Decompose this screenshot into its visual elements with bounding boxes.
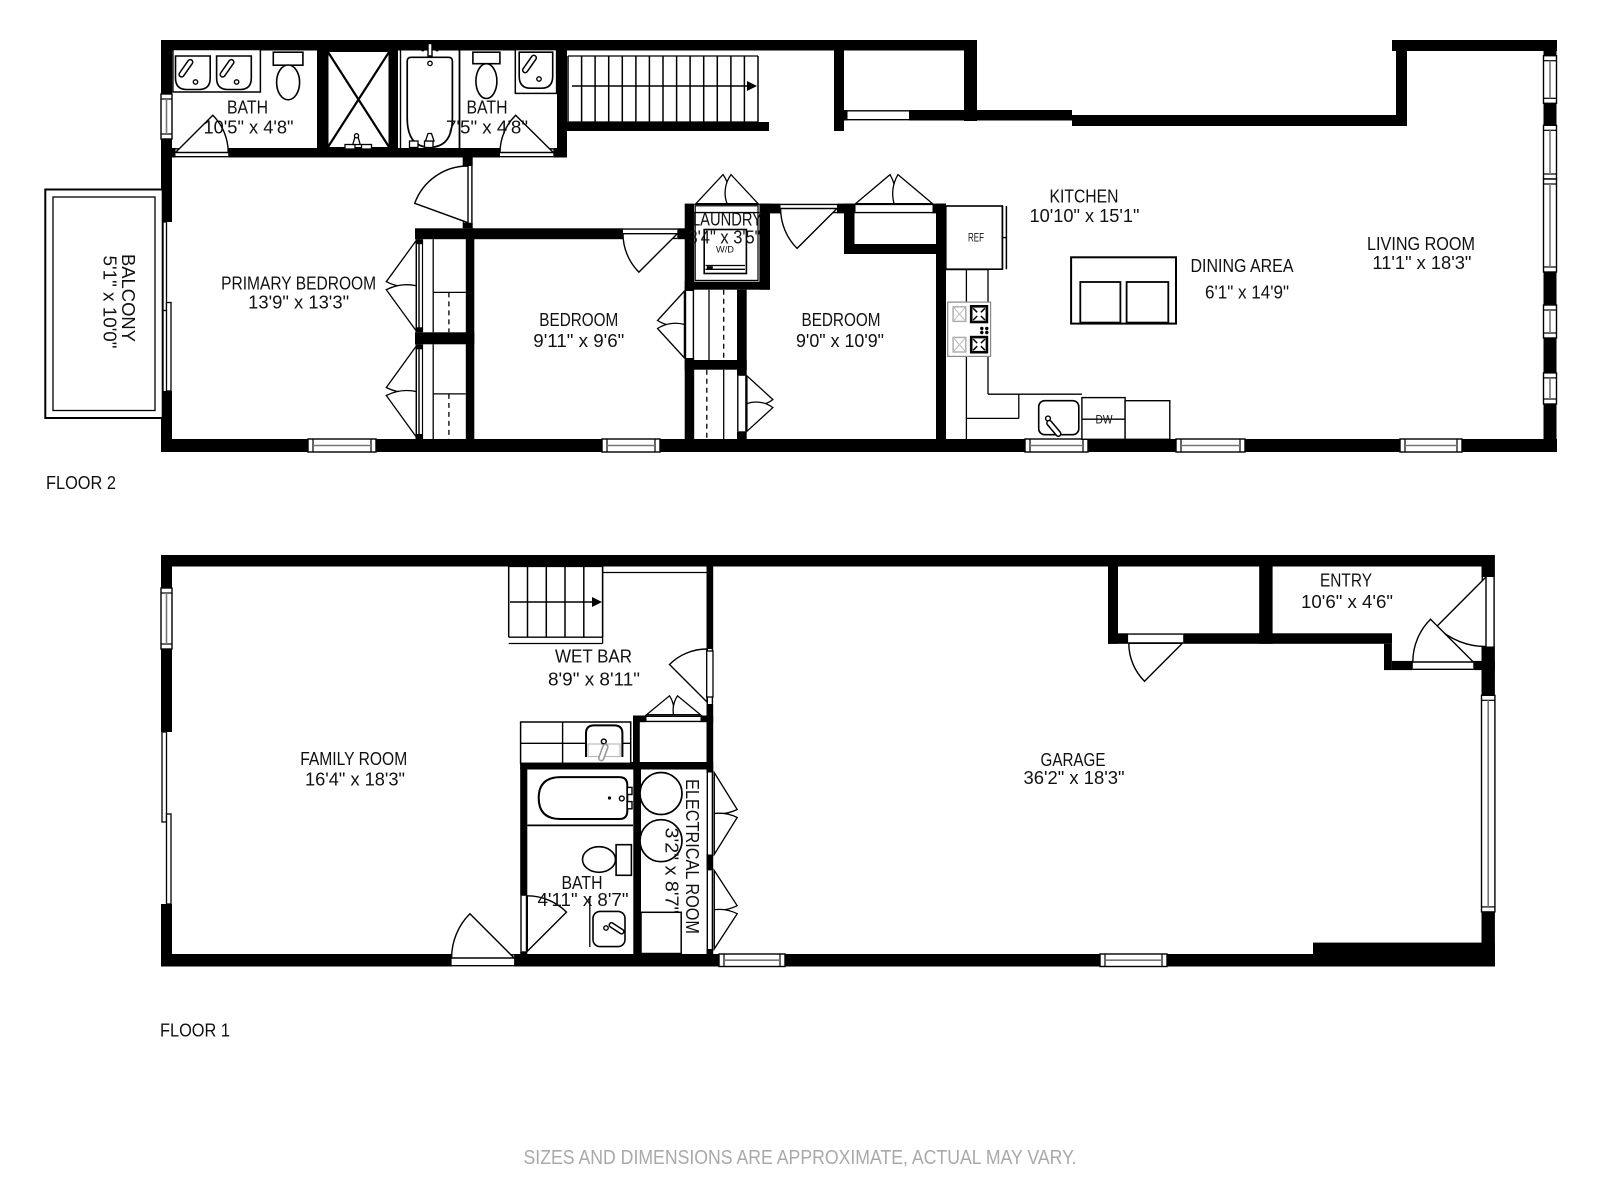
svg-text:BEDROOM: BEDROOM <box>802 310 881 330</box>
svg-text:WET BAR: WET BAR <box>555 647 632 667</box>
svg-text:10'6" x 4'6": 10'6" x 4'6" <box>1301 592 1393 612</box>
svg-text:8'9" x 8'11": 8'9" x 8'11" <box>548 670 640 690</box>
svg-text:ELECTRICAL ROOM: ELECTRICAL ROOM <box>682 779 702 934</box>
svg-text:REF: REF <box>968 231 984 245</box>
svg-text:PRIMARY BEDROOM: PRIMARY BEDROOM <box>221 274 376 294</box>
svg-text:DINING AREA: DINING AREA <box>1191 256 1294 276</box>
svg-text:11'1" x 18'3": 11'1" x 18'3" <box>1372 253 1471 273</box>
svg-text:10'5" x 4'8": 10'5" x 4'8" <box>204 118 294 138</box>
svg-text:3'2" x 8'7": 3'2" x 8'7" <box>662 828 682 914</box>
svg-text:10'10" x 15'1": 10'10" x 15'1" <box>1030 206 1140 226</box>
svg-text:FLOOR 1: FLOOR 1 <box>160 1021 230 1041</box>
svg-text:FAMILY ROOM: FAMILY ROOM <box>300 749 407 769</box>
svg-text:BALCONY: BALCONY <box>118 254 138 342</box>
svg-text:GARAGE: GARAGE <box>1041 750 1106 770</box>
svg-text:LIVING ROOM: LIVING ROOM <box>1367 234 1475 254</box>
svg-text:FLOOR 2: FLOOR 2 <box>46 473 116 493</box>
svg-text:SIZES AND DIMENSIONS ARE APPRO: SIZES AND DIMENSIONS ARE APPROXIMATE, AC… <box>524 1147 1077 1169</box>
svg-text:36'2" x 18'3": 36'2" x 18'3" <box>1024 768 1125 788</box>
svg-text:BATH: BATH <box>467 98 508 118</box>
svg-text:DW: DW <box>1096 413 1114 427</box>
svg-text:16'4" x 18'3": 16'4" x 18'3" <box>305 769 405 789</box>
svg-text:6'1" x 14'9": 6'1" x 14'9" <box>1205 283 1289 303</box>
svg-text:BATH: BATH <box>227 98 268 118</box>
svg-text:9'11" x 9'6": 9'11" x 9'6" <box>533 331 624 351</box>
svg-text:13'9" x 13'3": 13'9" x 13'3" <box>248 293 349 313</box>
svg-text:7'5" x 4'8": 7'5" x 4'8" <box>446 118 528 138</box>
svg-text:KITCHEN: KITCHEN <box>1050 187 1119 207</box>
svg-text:W/D: W/D <box>716 244 734 255</box>
svg-text:ENTRY: ENTRY <box>1320 571 1372 591</box>
svg-text:9'0" x 10'9": 9'0" x 10'9" <box>796 331 884 351</box>
svg-text:5'1" x 10'0": 5'1" x 10'0" <box>100 256 120 349</box>
svg-text:4'11" x 8'7": 4'11" x 8'7" <box>538 890 629 910</box>
svg-text:BEDROOM: BEDROOM <box>539 310 618 330</box>
